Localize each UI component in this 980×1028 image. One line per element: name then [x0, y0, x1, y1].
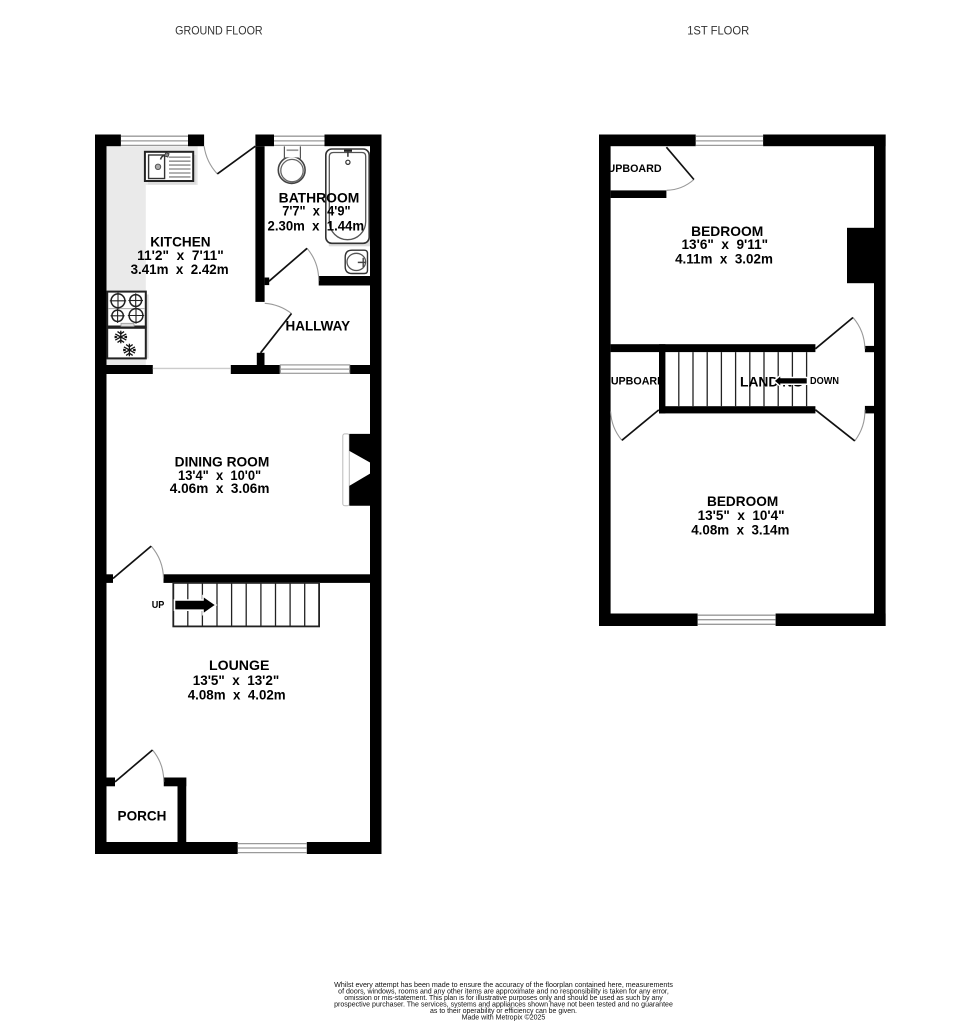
svg-text:4.08m x 4.02m: 4.08m x 4.02m: [188, 688, 286, 703]
svg-text:2.30m x 1.44m: 2.30m x 1.44m: [268, 219, 365, 234]
svg-text:DOWN: DOWN: [810, 376, 839, 387]
svg-text:LOUNGE: LOUNGE: [209, 658, 269, 673]
svg-text:11'2" x 7'11": 11'2" x 7'11": [137, 248, 224, 263]
svg-text:Made with Metropix ©2025: Made with Metropix ©2025: [462, 1014, 546, 1022]
svg-text:BEDROOM: BEDROOM: [707, 494, 778, 509]
svg-text:GROUND FLOOR: GROUND FLOOR: [175, 24, 263, 38]
svg-text:3.41m x 2.42m: 3.41m x 2.42m: [131, 262, 229, 277]
svg-text:CUPBOARD: CUPBOARD: [603, 375, 665, 387]
svg-text:CUPBOARD: CUPBOARD: [600, 163, 662, 175]
svg-text:13'5" x 13'2": 13'5" x 13'2": [193, 673, 280, 688]
svg-text:PORCH: PORCH: [118, 808, 167, 823]
svg-text:4.08m x 3.14m: 4.08m x 3.14m: [691, 522, 789, 537]
svg-text:1ST FLOOR: 1ST FLOOR: [687, 24, 749, 38]
svg-text:UP: UP: [152, 600, 165, 611]
svg-text:KITCHEN: KITCHEN: [150, 234, 210, 249]
svg-text:7'7" x 4'9": 7'7" x 4'9": [282, 204, 350, 219]
svg-text:13'5" x 10'4": 13'5" x 10'4": [698, 508, 785, 523]
svg-text:4.11m x 3.02m: 4.11m x 3.02m: [675, 252, 773, 267]
svg-text:HALLWAY: HALLWAY: [286, 319, 351, 334]
svg-text:13'6" x 9'11": 13'6" x 9'11": [682, 237, 769, 252]
svg-text:4.06m x 3.06m: 4.06m x 3.06m: [170, 481, 270, 496]
